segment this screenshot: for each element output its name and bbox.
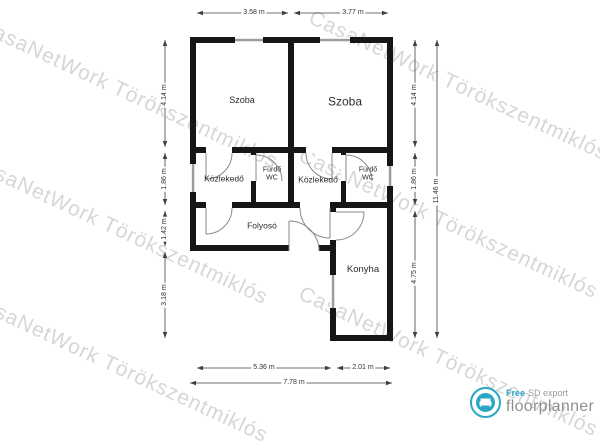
- room-label-folyoso: Folyosó: [247, 221, 277, 230]
- window: [320, 39, 350, 42]
- door-opening: [206, 202, 232, 208]
- door-opening: [341, 155, 346, 181]
- armchair-icon: [476, 393, 495, 412]
- wall: [330, 335, 393, 341]
- dim-left-4: 3.18 m: [161, 282, 169, 307]
- dimension-lines: [165, 13, 437, 383]
- room-label-szoba-right: Szoba: [328, 95, 362, 108]
- dim-top-left: 3.58 m: [241, 9, 266, 17]
- dim-right-total: 11.46 m: [433, 177, 441, 206]
- door-openings: [206, 147, 346, 251]
- door-opening: [330, 212, 336, 240]
- floorplanner-logo-text: FreeSD export floorplanner: [506, 389, 594, 415]
- room-label-kozlekedo-left: Közlekedő: [204, 174, 244, 183]
- wall: [387, 37, 393, 341]
- door-opening: [289, 245, 319, 251]
- window: [192, 164, 195, 192]
- window: [389, 166, 392, 186]
- dim-left-2: 1.86 m: [161, 166, 169, 191]
- dim-left-1: 4.14 m: [161, 82, 169, 107]
- window: [332, 275, 335, 308]
- door-opening: [306, 147, 332, 153]
- logo-export-line: FreeSD export: [506, 389, 594, 398]
- dim-right-3: 4.75 m: [411, 260, 419, 285]
- room-label-kozlekedo-right: Közlekedő: [298, 175, 338, 184]
- room-label-szoba-left: Szoba: [229, 96, 255, 106]
- dim-left-3: 1.42 m: [161, 216, 169, 241]
- floorplan-canvas: CasaNetWork Törökszentmiklós CasaNetWork…: [0, 0, 600, 423]
- dim-bottom-left: 5.36 m: [251, 364, 276, 372]
- dim-bottom-total: 7.78 m: [281, 379, 306, 387]
- wall: [288, 37, 294, 208]
- room-label-konyha: Konyha: [347, 265, 379, 275]
- door-opening: [251, 155, 256, 181]
- dim-right-2: 1.86 m: [411, 166, 419, 191]
- room-label-furdo-right: Fürdő WC: [353, 166, 383, 181]
- room-label-furdo-left: Fürdő WC: [257, 166, 287, 181]
- floor-plan: [0, 0, 600, 423]
- door-arc: [336, 212, 364, 240]
- walls: [190, 37, 393, 341]
- logo-free-label: Free: [506, 388, 525, 398]
- dim-top-right: 3.77 m: [340, 9, 365, 17]
- door-opening: [300, 202, 330, 208]
- dim-right-1: 4.14 m: [411, 82, 419, 107]
- window: [235, 39, 263, 42]
- logo-export-label: SD export: [528, 388, 568, 398]
- door-arc: [300, 208, 330, 238]
- wall: [190, 37, 196, 251]
- door-arc: [206, 208, 232, 234]
- logo-brand-name: floorplanner: [506, 399, 594, 415]
- floorplanner-logo: FreeSD export floorplanner: [470, 384, 598, 420]
- door-opening: [206, 147, 232, 153]
- dim-bottom-right: 2.01 m: [350, 364, 375, 372]
- floorplanner-logo-icon: [470, 387, 501, 418]
